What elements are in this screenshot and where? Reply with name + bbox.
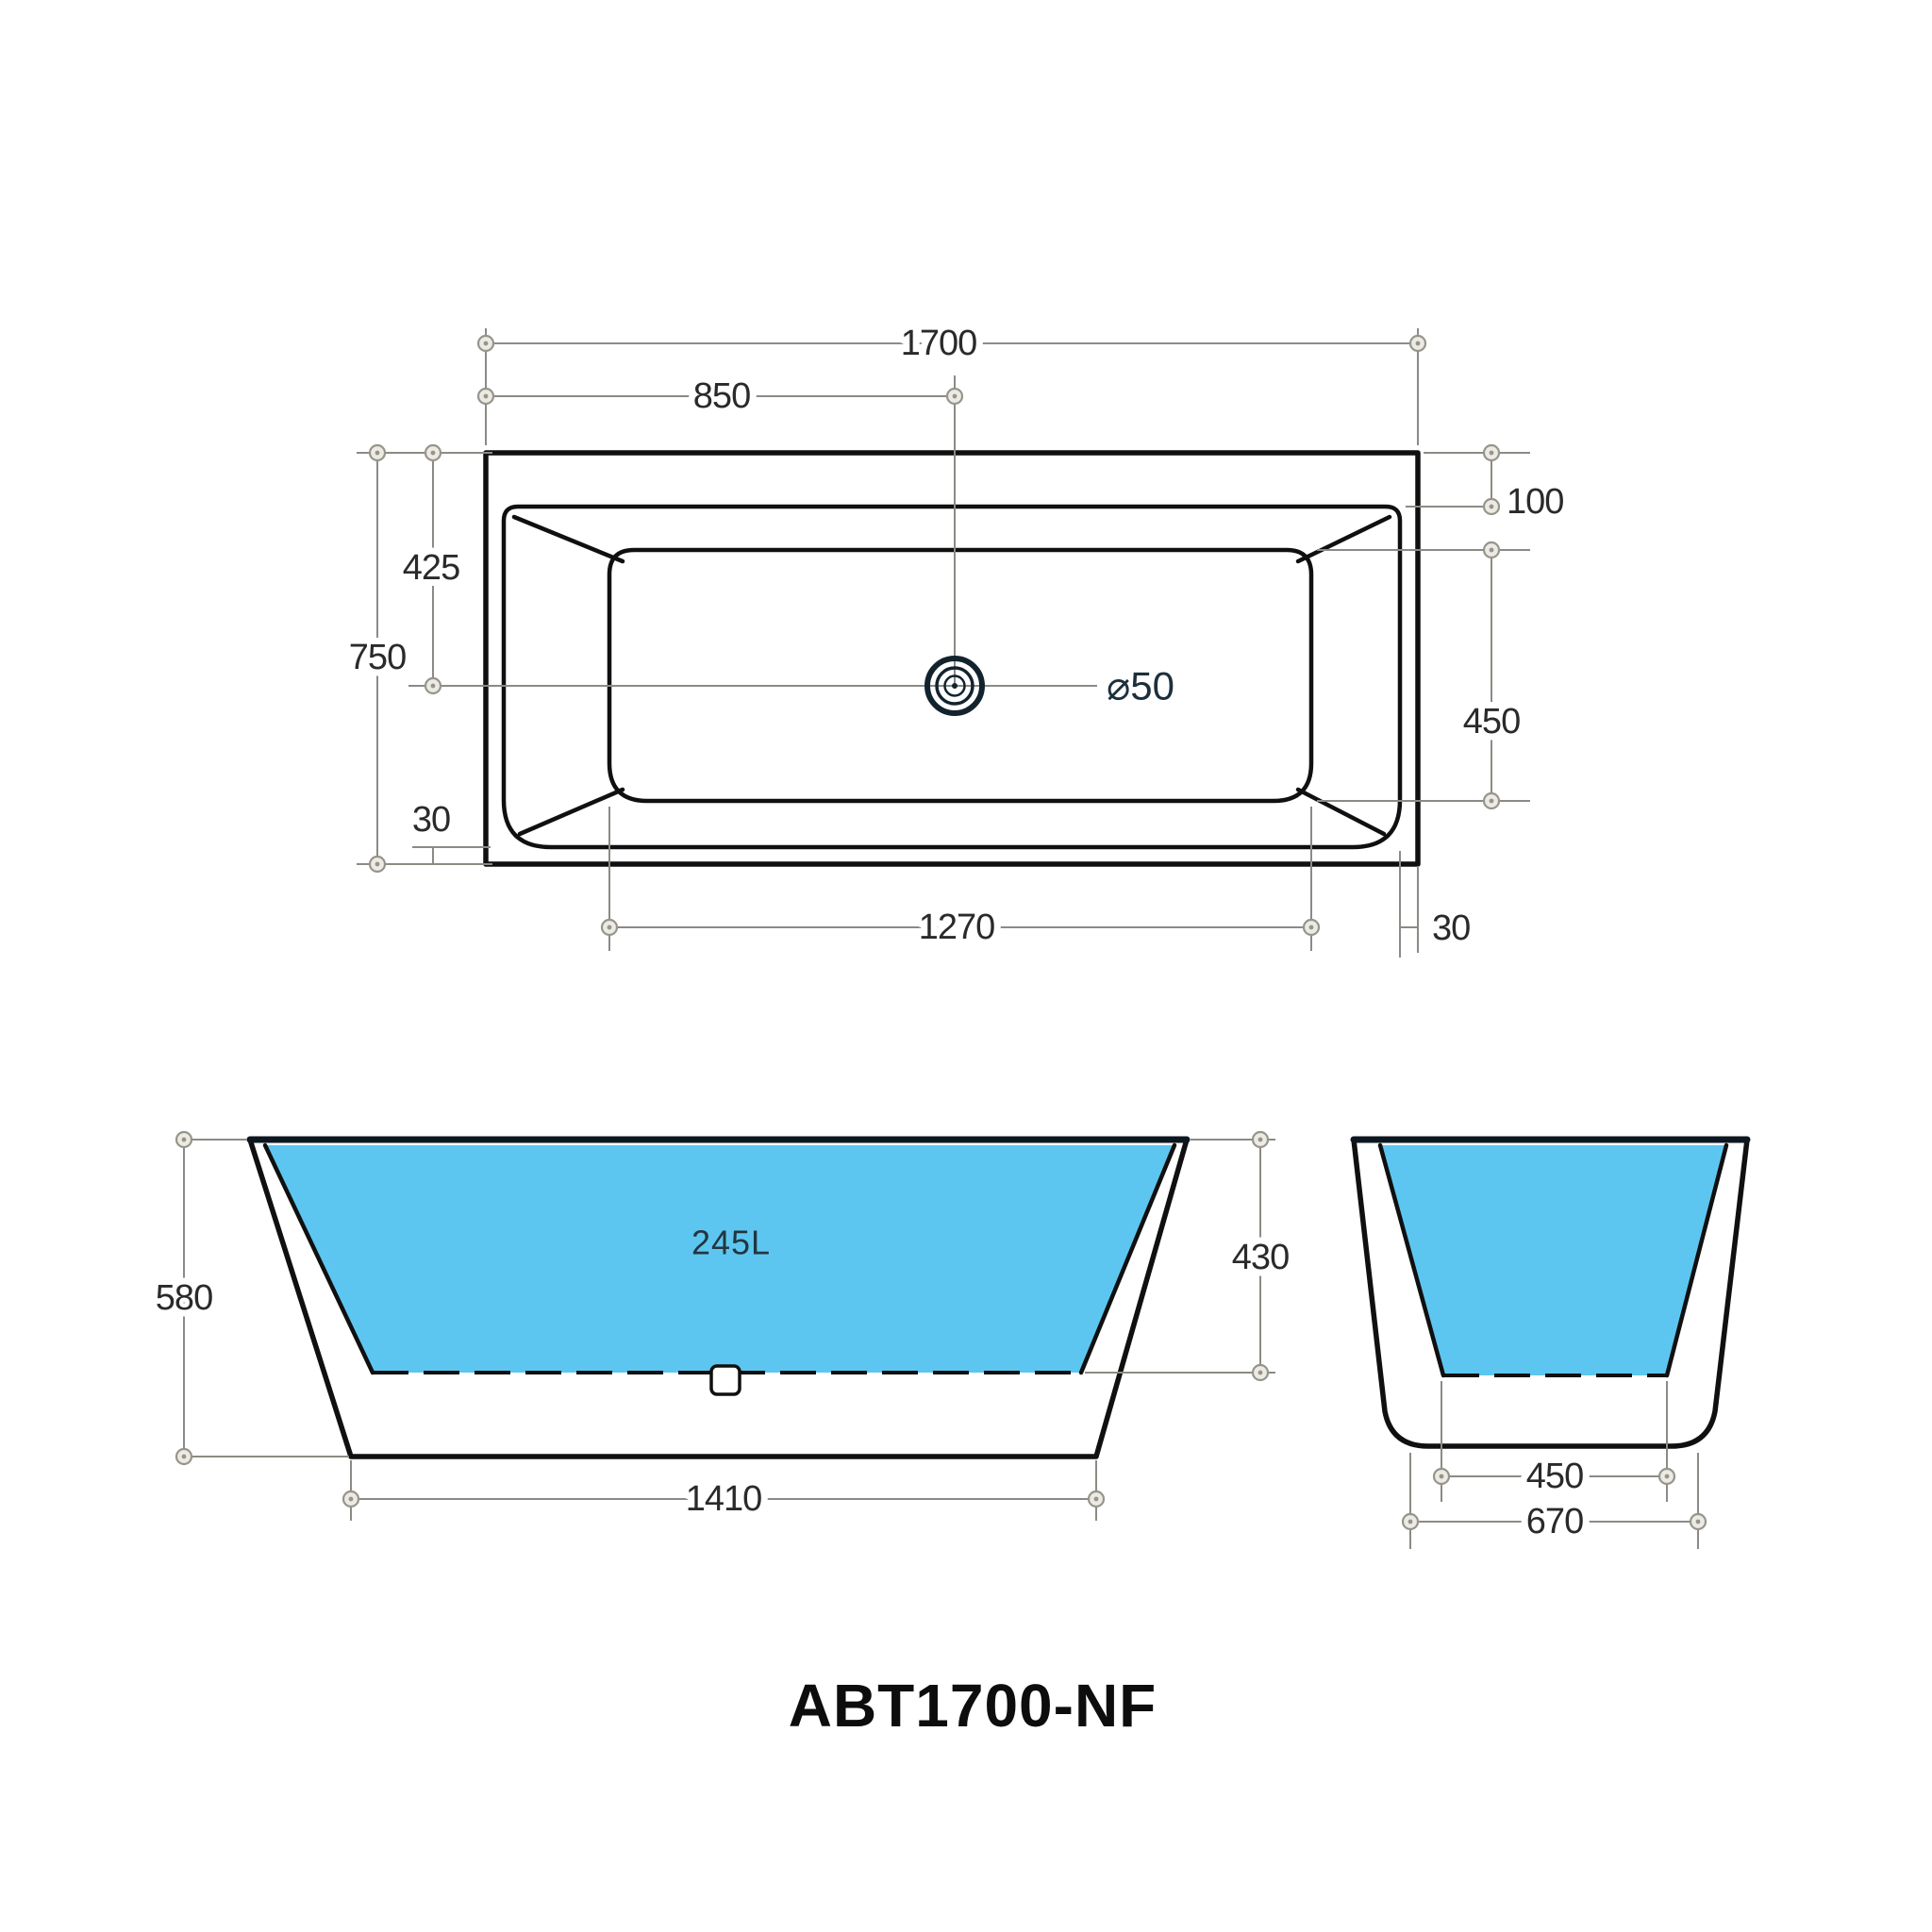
- dim-inner-depth: 430: [1232, 1238, 1289, 1277]
- dim-overall-height: 580: [156, 1278, 212, 1318]
- dim-overall-length-group: 1700: [478, 324, 1425, 445]
- dim-rim-side-group: 30: [1400, 851, 1470, 958]
- plan-basin-floor: [609, 550, 1311, 801]
- dim-floor-length: 1270: [919, 908, 995, 947]
- drain-icon: [927, 658, 982, 713]
- plan-corner-edge-tl: [514, 517, 623, 561]
- dim-drain-offset: 850: [693, 376, 750, 416]
- dim-drain-from-top-group: 425: [403, 445, 459, 693]
- dim-rim-side: 30: [1432, 908, 1470, 948]
- dim-drain-from-top: 425: [403, 548, 459, 588]
- dim-rim-top: 100: [1507, 482, 1563, 522]
- plan-corner-edge-tr: [1298, 517, 1390, 561]
- front-view: 245L 580 430 1410: [156, 1132, 1289, 1521]
- dim-rim-top-group: 100: [1406, 445, 1563, 522]
- dim-rim-bottom: 30: [412, 800, 450, 840]
- bathtub-technical-drawing: ⌀50 1700 850 750 425: [0, 0, 1932, 1932]
- capacity-label: 245L: [691, 1224, 771, 1262]
- waste-outlet-icon: [711, 1366, 740, 1394]
- dim-side-base-width: 670: [1526, 1502, 1583, 1541]
- dim-floor-width: 450: [1463, 702, 1520, 741]
- dim-base-length-group: 1410: [343, 1460, 1104, 1521]
- dim-rim-bottom-group: 30: [412, 800, 491, 864]
- dim-drain-diameter: ⌀50: [1107, 664, 1174, 708]
- dim-base-length: 1410: [686, 1479, 762, 1519]
- dim-drain-offset-group: 850: [478, 376, 962, 416]
- dim-overall-length: 1700: [901, 324, 977, 363]
- dim-floor-length-group: 1270: [602, 807, 1319, 951]
- plan-corner-edge-bl: [520, 790, 623, 834]
- model-title: ABT1700-NF: [789, 1672, 1158, 1740]
- plan-view: ⌀50 1700 850 750 425: [349, 324, 1564, 958]
- dim-overall-width: 750: [349, 638, 406, 677]
- dim-floor-width-group: 450: [1317, 542, 1530, 808]
- side-view: 450 670: [1354, 1140, 1747, 1549]
- dim-side-floor-width-group: 450: [1434, 1381, 1674, 1502]
- dim-side-floor-width: 450: [1526, 1457, 1583, 1496]
